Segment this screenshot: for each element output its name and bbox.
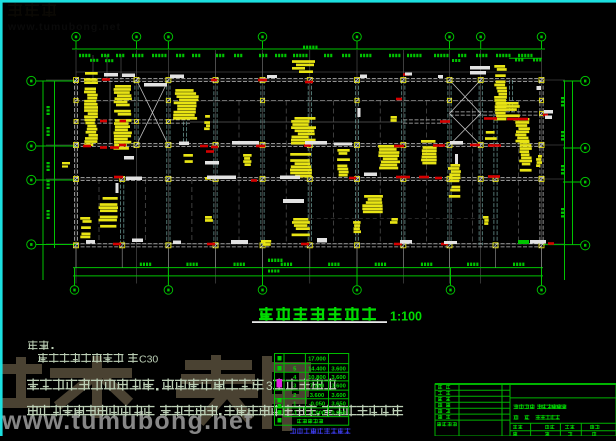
svg-text:www.tumubong.net: www.tumubong.net [7,21,121,33]
svg-text:-0.050: -0.050 [309,402,325,408]
svg-text:3.600: 3.600 [331,384,346,390]
svg-text:2: 2 [293,393,296,399]
svg-text:14.400: 14.400 [308,366,326,372]
svg-text:10.800: 10.800 [308,375,326,381]
svg-text:-1.000: -1.000 [309,411,325,417]
svg-text:3: 3 [266,379,273,393]
svg-text:3.600: 3.600 [310,393,325,399]
svg-text:1:100: 1:100 [390,310,422,324]
svg-text:C30: C30 [139,354,158,366]
svg-text:3.600: 3.600 [331,366,346,372]
svg-text:3.650: 3.650 [331,402,346,408]
svg-text:17.000: 17.000 [308,356,326,362]
svg-text:0.950: 0.950 [331,411,346,417]
svg-text:7.200: 7.200 [310,384,325,390]
svg-text:-1: -1 [292,411,298,417]
svg-text:3.600: 3.600 [331,375,346,381]
svg-text:3.600: 3.600 [331,393,346,399]
